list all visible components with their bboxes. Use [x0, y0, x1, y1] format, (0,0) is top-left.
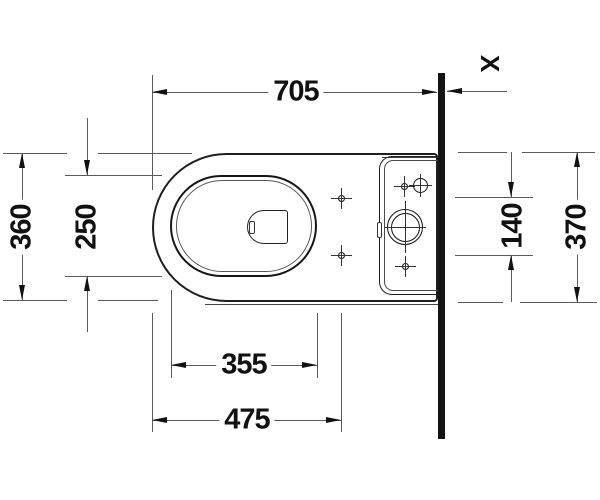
dim-arrow	[447, 88, 462, 94]
dim-arrow	[84, 160, 90, 175]
dim-arrow	[508, 255, 514, 270]
dim-arrow	[19, 285, 25, 300]
platform-notch	[377, 222, 382, 238]
dim-front-to-fixing-label: 475	[219, 405, 274, 436]
extension-line	[98, 153, 192, 154]
seat-fixing-hole	[338, 195, 345, 202]
dim-arrow	[508, 182, 514, 197]
dim-arrow	[19, 153, 25, 168]
centerline	[385, 227, 426, 228]
dim-arrow	[574, 152, 580, 167]
extension-line	[65, 175, 162, 176]
dim-arrow	[302, 362, 317, 368]
fixing-hole	[402, 263, 409, 270]
extension-line	[65, 276, 162, 277]
extension-line	[458, 302, 503, 303]
dim-overall-depth-label: 705	[268, 77, 323, 108]
extension-line	[522, 152, 595, 153]
wall-line	[438, 73, 445, 439]
seat-fixing-hole	[338, 252, 345, 259]
bowl-inner-edge	[176, 180, 312, 272]
dim-arrow	[326, 417, 341, 423]
dim-arrow	[84, 276, 90, 291]
dim-tank-width-label: 370	[562, 199, 593, 254]
body-rim-line	[205, 304, 438, 305]
extension-line	[3, 153, 67, 154]
dim-bowl-inner-length-label: 355	[216, 350, 271, 381]
extension-line	[520, 302, 597, 303]
dim-arrow	[152, 89, 167, 95]
technical-drawing-canvas: 705 X 360 250 140 370 355 475	[0, 0, 600, 500]
extension-line	[317, 313, 318, 378]
extension-line	[152, 313, 153, 432]
dim-arrow	[574, 287, 580, 302]
water-inlet-hole	[413, 178, 428, 193]
drain-notch	[249, 221, 255, 234]
dim-fixing-hole-spacing-label: 140	[498, 198, 529, 253]
extension-line	[98, 300, 158, 301]
fixing-hole	[401, 183, 408, 190]
extension-line	[455, 255, 533, 256]
dim-bowl-width-label: 360	[7, 199, 38, 254]
dim-arrow	[171, 362, 186, 368]
dim-bowl-inner-width-label: 250	[72, 199, 103, 254]
dim-arrow	[152, 417, 167, 423]
dim-arrow	[422, 89, 437, 95]
extension-line	[3, 300, 67, 301]
extension-line	[341, 313, 342, 432]
wall-distance-symbol: X	[476, 50, 504, 76]
extension-line	[458, 152, 507, 153]
